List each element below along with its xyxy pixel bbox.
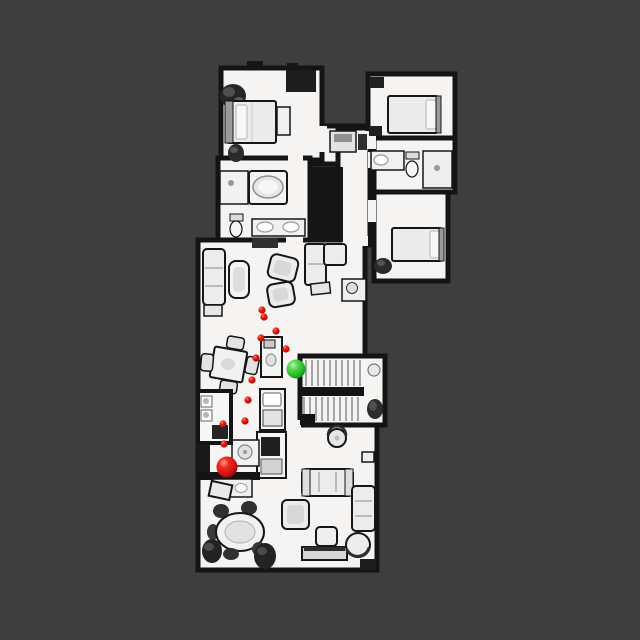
floorplan-canvas bbox=[0, 0, 640, 640]
dishwasher bbox=[263, 410, 282, 426]
corner-sofa bbox=[324, 244, 346, 265]
armchair-cushion bbox=[287, 505, 304, 524]
waypoint-dot bbox=[257, 334, 264, 341]
waypoint-dot bbox=[248, 376, 255, 383]
wall-mass bbox=[360, 559, 376, 570]
doorway-gap bbox=[368, 200, 376, 222]
bed-pillow bbox=[236, 105, 247, 139]
plant bbox=[202, 539, 222, 563]
bed-pillow bbox=[430, 231, 439, 258]
bed-headboard bbox=[225, 101, 233, 143]
toilet-bowl bbox=[230, 221, 242, 237]
bed-pillow bbox=[426, 100, 436, 129]
shower-drain bbox=[434, 165, 440, 171]
dryer-door bbox=[203, 412, 209, 418]
shower bbox=[220, 171, 248, 204]
washer-lid bbox=[334, 134, 352, 142]
doorway-gap bbox=[318, 126, 327, 152]
kitchen-sink bbox=[263, 393, 281, 406]
bed-headboard bbox=[439, 228, 444, 261]
island-item bbox=[264, 340, 275, 348]
plant bbox=[228, 144, 244, 162]
waypoint-dot bbox=[219, 420, 226, 427]
side-item bbox=[362, 452, 374, 462]
desk-chair bbox=[347, 283, 358, 294]
toilet-tank bbox=[406, 152, 419, 159]
cabinet-drain bbox=[243, 450, 247, 454]
doorway-gap bbox=[288, 154, 303, 163]
sink bbox=[283, 222, 299, 232]
dining-chair bbox=[200, 354, 213, 372]
waypoint-dot bbox=[260, 313, 267, 320]
waypoint-dot bbox=[282, 345, 289, 352]
toilet-tank bbox=[230, 214, 243, 221]
dining-chair bbox=[226, 336, 245, 351]
closet-shadow bbox=[286, 70, 316, 92]
cabinet bbox=[358, 134, 367, 150]
sink bbox=[235, 484, 247, 493]
roof-bump bbox=[247, 61, 263, 69]
stool bbox=[368, 364, 380, 376]
waypoint-dot bbox=[220, 440, 227, 447]
side-table bbox=[209, 481, 233, 500]
shower-drain bbox=[228, 180, 234, 186]
ottoman bbox=[316, 527, 337, 546]
bathtub-basin-inner bbox=[258, 180, 278, 194]
agent-sphere bbox=[217, 457, 238, 478]
pantry-shadow bbox=[212, 425, 228, 439]
wall-mass bbox=[197, 444, 210, 474]
side-table bbox=[204, 305, 222, 316]
plant bbox=[254, 543, 276, 569]
sink bbox=[257, 222, 273, 232]
office-chair-hub bbox=[335, 436, 340, 441]
closet-shadow bbox=[369, 126, 382, 136]
bed-headboard bbox=[436, 96, 441, 133]
sofa-side-table bbox=[310, 282, 330, 295]
waypoint-dot bbox=[272, 327, 279, 334]
round-table-inner bbox=[225, 521, 255, 543]
plant-leaf bbox=[204, 543, 214, 551]
nightstand bbox=[277, 107, 290, 135]
sofa bbox=[352, 486, 375, 531]
oven bbox=[261, 459, 282, 474]
plant-leaf bbox=[257, 547, 267, 555]
coffee-table-inner bbox=[233, 267, 245, 292]
doorway-gap bbox=[285, 420, 301, 430]
plant-leaf bbox=[377, 260, 385, 266]
sink bbox=[374, 155, 388, 165]
plant-leaf bbox=[223, 87, 235, 97]
sofa-armrest bbox=[302, 469, 310, 496]
waypoint-dot bbox=[252, 354, 259, 361]
waypoint-dot bbox=[258, 306, 265, 313]
media-console bbox=[252, 238, 278, 248]
wall-column bbox=[310, 167, 343, 242]
plant bbox=[374, 258, 392, 274]
dining-chair-dark bbox=[223, 548, 239, 560]
viewport bbox=[0, 0, 640, 640]
washer-door bbox=[203, 398, 209, 404]
tv bbox=[304, 547, 345, 551]
table-centerpiece bbox=[221, 358, 235, 370]
waypoint-dot bbox=[241, 417, 248, 424]
cooktop bbox=[261, 437, 280, 456]
wall-mass bbox=[300, 414, 315, 425]
plant-leaf bbox=[230, 147, 238, 153]
roof-bump bbox=[287, 63, 298, 69]
stair-rail bbox=[301, 387, 364, 396]
sofa bbox=[203, 249, 225, 305]
goal-sphere bbox=[287, 360, 306, 379]
waypoint-dot bbox=[244, 396, 251, 403]
island-sink bbox=[266, 354, 276, 366]
plant-leaf bbox=[369, 401, 377, 411]
toilet-bowl bbox=[406, 161, 418, 177]
closet-shadow bbox=[369, 77, 384, 88]
